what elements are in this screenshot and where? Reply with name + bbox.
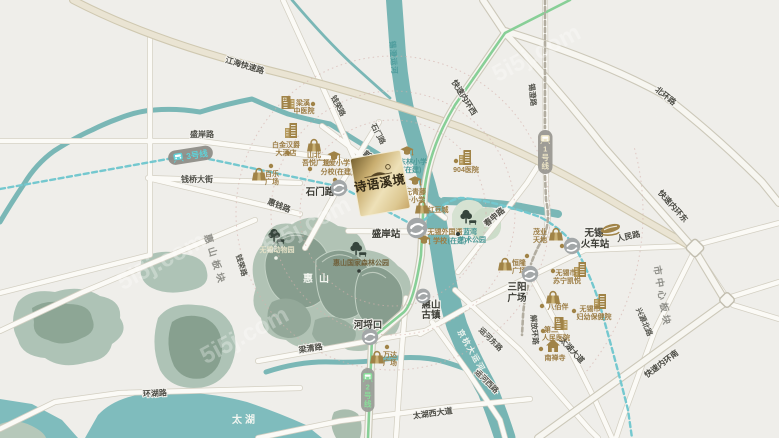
svg-text:恒隆: 恒隆: [511, 258, 527, 267]
svg-text:太湖: 太湖: [231, 413, 258, 426]
svg-text:山北: 山北: [307, 150, 321, 159]
svg-text:分校(在建): 分校(在建): [321, 167, 354, 176]
svg-text:南禅寺: 南禅寺: [545, 353, 566, 362]
svg-text:盛岸站: 盛岸站: [372, 228, 401, 240]
svg-text:线: 线: [364, 399, 372, 409]
svg-text:梁溪: 梁溪: [295, 98, 311, 107]
svg-text:无锡市: 无锡市: [555, 268, 577, 277]
svg-text:广场: 广场: [383, 358, 397, 367]
svg-text:大酒店: 大酒店: [276, 148, 297, 157]
svg-text:(在建): (在建): [403, 165, 422, 174]
svg-text:广场: 广场: [507, 292, 527, 304]
svg-text:五爱小学: 五爱小学: [322, 158, 350, 167]
svg-text:钱桥大街: 钱桥大街: [181, 174, 213, 184]
svg-text:无锡: 无锡: [583, 227, 604, 239]
svg-text:·小学: ·小学: [409, 195, 425, 204]
svg-text:学校: 学校: [433, 236, 448, 245]
svg-text:妇幼保健院: 妇幼保健院: [576, 312, 612, 321]
svg-text:茂业: 茂业: [533, 227, 547, 236]
svg-text:白金汉爵: 白金汉爵: [272, 140, 300, 149]
svg-text:盛岸路: 盛岸路: [190, 129, 215, 139]
svg-text:无锡市: 无锡市: [579, 304, 601, 313]
svg-text:环湖路: 环湖路: [143, 387, 168, 398]
svg-text:第二: 第二: [544, 325, 558, 334]
svg-text:三阳: 三阳: [507, 282, 526, 293]
svg-text:蓝湾: 蓝湾: [463, 227, 477, 236]
svg-text:天地: 天地: [533, 235, 547, 244]
svg-text:石门路: 石门路: [305, 186, 335, 198]
svg-text:锡澄路: 锡澄路: [527, 83, 539, 107]
svg-text:古镇: 古镇: [421, 309, 441, 321]
svg-text:广场: 广场: [265, 177, 279, 186]
svg-text:八佰伴: 八佰伴: [547, 302, 569, 311]
svg-text:惠山国家森林公园: 惠山国家森林公园: [333, 258, 389, 267]
svg-text:百乐: 百乐: [265, 169, 279, 178]
svg-text:904医院: 904医院: [453, 165, 479, 174]
svg-text:中医院: 中医院: [294, 106, 315, 115]
svg-text:红豆城: 红豆城: [428, 205, 449, 214]
svg-text:万达: 万达: [382, 350, 397, 359]
svg-text:惠山: 惠山: [303, 272, 335, 285]
svg-text:线: 线: [541, 161, 549, 171]
svg-text:人民医院: 人民医院: [542, 333, 570, 342]
svg-text:苏宁凯悦: 苏宁凯悦: [553, 276, 581, 285]
svg-text:火车站: 火车站: [581, 238, 610, 250]
svg-text:艺术公园: 艺术公园: [458, 235, 486, 244]
